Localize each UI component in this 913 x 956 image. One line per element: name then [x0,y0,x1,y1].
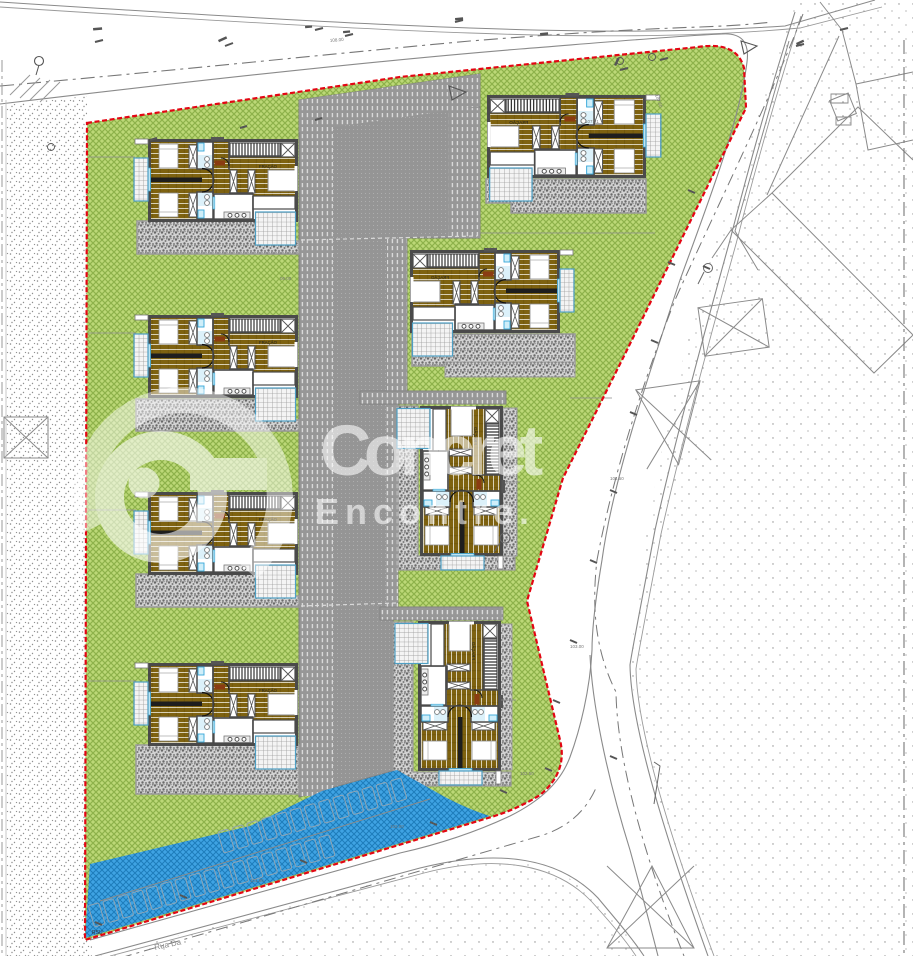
svg-text:101.50: 101.50 [250,878,264,883]
svg-text:Concret: Concret [320,412,543,491]
svg-text:102.50: 102.50 [520,771,534,776]
svg-text:102.00: 102.00 [390,824,404,829]
svg-text:Encontre.: Encontre. [315,491,535,532]
svg-text:104.50: 104.50 [610,476,624,481]
svg-text:103.00: 103.00 [570,644,584,649]
svg-text:RSU: RSU [92,930,103,936]
svg-text:107.01: 107.01 [585,119,599,124]
